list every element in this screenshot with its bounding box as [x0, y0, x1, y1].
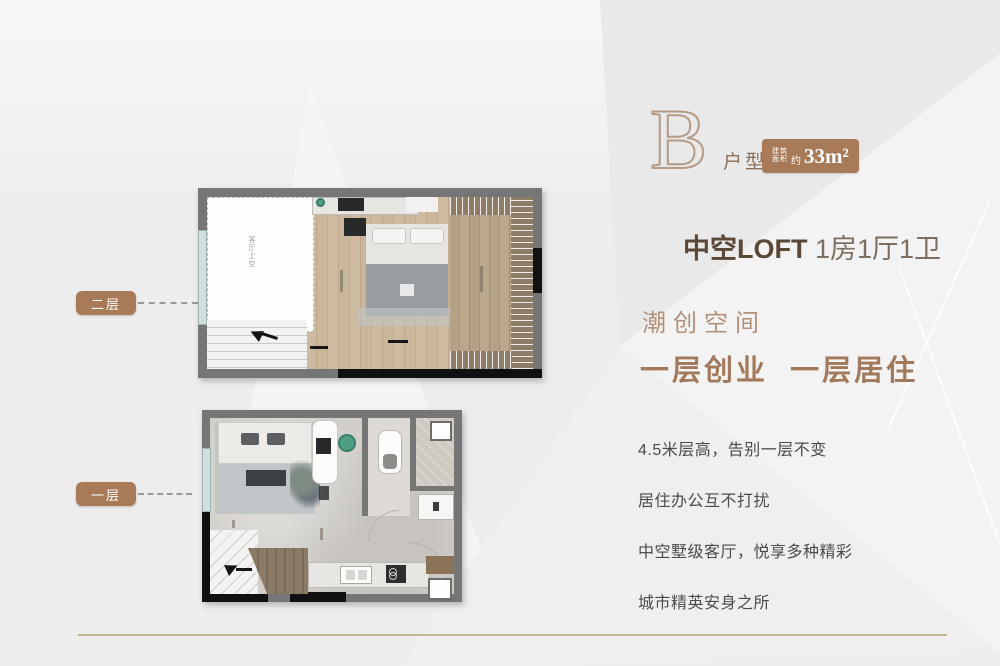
void-label: 客厅上空 [246, 236, 256, 268]
slogan-line2: 一层创业 一层居住 [640, 347, 918, 389]
toilet-lid [383, 454, 396, 469]
wall [198, 369, 343, 378]
area-badge-prefix-bottom: 面积 [772, 156, 788, 164]
desk-chair [316, 438, 331, 454]
poster-canvas: B 户型 建筑 面积 约 33m² 中空LOFT 1房1厅1卫 潮创空间 一层创… [0, 0, 1000, 666]
stool-green [338, 434, 356, 452]
toilet [378, 430, 402, 474]
room-label-mark [340, 270, 343, 292]
wall [202, 410, 462, 418]
window [198, 230, 207, 325]
pillow [410, 228, 444, 244]
circulation-arrow [310, 346, 328, 349]
pillow [372, 228, 406, 244]
unit-letter: B [650, 96, 707, 182]
basin-tap [433, 502, 440, 510]
wall [454, 410, 462, 602]
appliance [428, 578, 452, 600]
room-label-mark [320, 528, 323, 540]
area-badge-approx: 约 [791, 152, 801, 167]
sink-bowl [346, 570, 355, 580]
desk-counter [312, 197, 419, 215]
wall [268, 594, 292, 602]
bed-tray [400, 284, 414, 296]
feature-list: 4.5米层高，告别一层不变 居住办公互不打扰 中空墅级客厅，悦享多种精彩 城市精… [638, 436, 958, 640]
rug [358, 308, 458, 326]
sofa [218, 422, 312, 464]
wall [202, 510, 210, 602]
washbasin [418, 494, 454, 520]
bed [366, 224, 448, 316]
lower-floor-badge: 一层 [76, 482, 136, 506]
cabinet [426, 556, 454, 574]
void-area: 客厅上空 [207, 197, 314, 332]
slogan-line1: 潮创空间 [642, 303, 766, 338]
shower-fixture [430, 421, 452, 441]
wall [533, 248, 542, 293]
wall [338, 369, 542, 378]
unit-type-label: 户型 [723, 147, 767, 174]
desk-chair [344, 218, 366, 236]
upper-floor-badge: 二层 [76, 291, 136, 315]
area-badge-prefix-top: 建筑 [772, 148, 788, 156]
headline-bold: 中空LOFT [683, 234, 807, 264]
circulation-arrow [388, 340, 408, 343]
upper-floor-plan: 客厅上空 [198, 188, 542, 378]
plant [316, 198, 325, 207]
floor-item [319, 486, 329, 500]
sofa-cushion [241, 433, 259, 445]
feature-item: 居住办公互不打扰 [638, 487, 958, 511]
bottom-divider-line [78, 634, 947, 636]
desk-monitor [338, 198, 364, 211]
feature-item: 城市精英安身之所 [638, 589, 958, 613]
feature-item: 中空墅级客厅，悦享多种精彩 [638, 538, 958, 562]
cooktop [386, 565, 406, 583]
feature-item: 4.5米层高，告别一层不变 [638, 436, 958, 460]
closet-rail [511, 197, 533, 369]
door-landing [406, 197, 438, 212]
wall [202, 594, 268, 602]
coffee-table [246, 470, 286, 486]
headline-rest: 1房1厅1卫 [808, 234, 942, 264]
wall [410, 486, 454, 491]
window [202, 448, 211, 512]
headline: 中空LOFT 1房1厅1卫 [653, 196, 941, 297]
lower-floor-plan [202, 410, 462, 602]
area-badge: 建筑 面积 约 33m² [762, 139, 859, 173]
sofa-cushion [267, 433, 285, 445]
room-label-mark [232, 520, 235, 528]
upper-floor-leader-line [138, 302, 198, 304]
wall [198, 188, 542, 197]
room-label-mark [480, 266, 483, 292]
area-badge-prefix: 建筑 面积 [772, 148, 788, 164]
sink-bowl [358, 570, 367, 580]
area-badge-value: 33m² [804, 144, 849, 169]
lower-floor-leader-line [138, 493, 192, 495]
closet-rail [450, 351, 512, 369]
burner [389, 572, 397, 580]
kitchen-sink [340, 566, 372, 584]
